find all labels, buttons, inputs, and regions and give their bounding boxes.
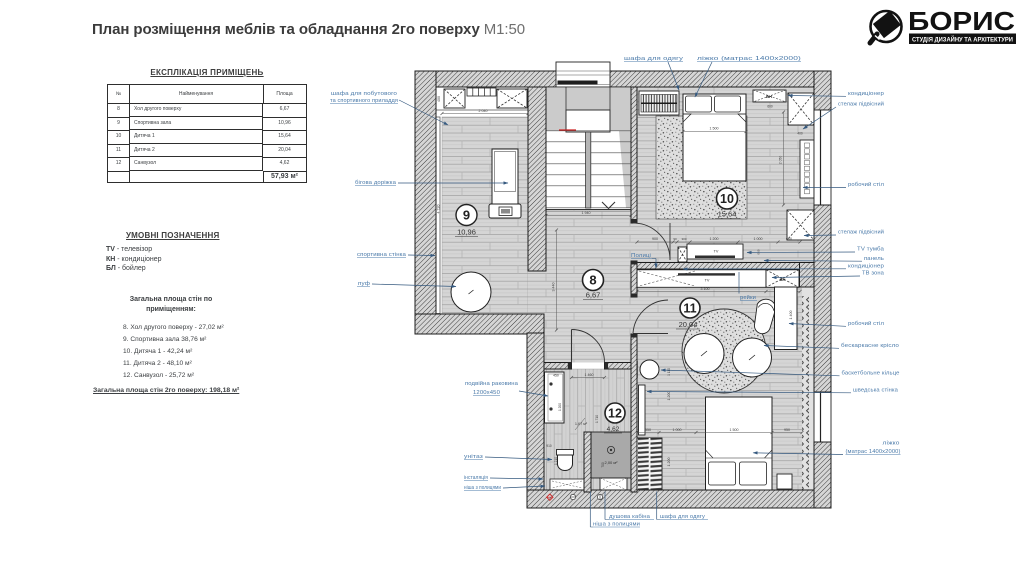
svg-text:баскетбольне кільце: баскетбольне кільце [842, 371, 900, 377]
svg-text:робочий стіл: робочий стіл [848, 320, 884, 327]
svg-text:700: 700 [601, 462, 605, 468]
svg-text:1 500: 1 500 [710, 127, 719, 131]
svg-text:20,04: 20,04 [679, 320, 698, 329]
svg-text:1 200: 1 200 [667, 392, 671, 401]
svg-text:90: 90 [673, 237, 677, 241]
svg-text:1 500: 1 500 [730, 428, 739, 432]
svg-text:400: 400 [437, 96, 441, 102]
svg-text:ВН: ВН [780, 277, 786, 282]
svg-text:1 000: 1 000 [673, 428, 682, 432]
svg-text:1 110: 1 110 [667, 368, 671, 376]
svg-text:12: 12 [608, 407, 622, 421]
svg-text:600: 600 [786, 237, 792, 241]
svg-text:(матрас 1400х2000): (матрас 1400х2000) [846, 449, 901, 455]
svg-text:ВН: ВН [766, 94, 772, 99]
svg-text:2 040: 2 040 [479, 109, 488, 113]
svg-text:1 710: 1 710 [595, 415, 599, 423]
svg-text:4 720: 4 720 [437, 205, 441, 214]
svg-text:TV: TV [714, 250, 719, 254]
svg-text:1 940: 1 940 [582, 211, 591, 215]
svg-text:3 440: 3 440 [552, 283, 556, 292]
svg-text:1200х450: 1200х450 [473, 390, 500, 396]
svg-text:панель: панель [864, 256, 884, 262]
svg-text:600: 600 [767, 105, 773, 109]
svg-text:6,67: 6,67 [586, 291, 601, 300]
svg-text:10,96: 10,96 [457, 228, 476, 237]
svg-text:300: 300 [681, 237, 686, 241]
svg-text:шафа для одягу: шафа для одягу [624, 56, 684, 62]
svg-text:рейки: рейки [740, 294, 756, 301]
svg-text:1 200: 1 200 [558, 403, 562, 411]
svg-text:1 210: 1 210 [554, 457, 558, 465]
svg-text:8: 8 [589, 273, 596, 288]
svg-text:ніша з полицями: ніша з полицями [464, 485, 501, 491]
svg-text:950: 950 [784, 428, 790, 432]
svg-text:шафа для одягу: шафа для одягу [660, 514, 705, 520]
svg-text:стелаж підвісний: стелаж підвісний [838, 101, 884, 108]
svg-text:спортивна стінка: спортивна стінка [357, 252, 406, 258]
svg-text:1 200: 1 200 [710, 237, 719, 241]
svg-text:1 000: 1 000 [754, 237, 763, 241]
svg-text:2,00 м²: 2,00 м² [605, 460, 619, 465]
svg-text:унітаз: унітаз [464, 454, 484, 460]
svg-text:TV: TV [705, 279, 710, 283]
svg-text:шафа для побутового: шафа для побутового [331, 91, 397, 97]
svg-text:2 050: 2 050 [779, 156, 783, 165]
svg-text:15,64: 15,64 [718, 210, 737, 219]
svg-text:бігова доріжка: бігова доріжка [355, 180, 396, 186]
svg-text:стелаж підвісний: стелаж підвісний [838, 229, 884, 236]
svg-text:ТВ зона: ТВ зона [862, 271, 884, 277]
svg-text:9: 9 [463, 208, 470, 223]
svg-text:кондиціонер: кондиціонер [848, 263, 884, 269]
svg-text:подвійна раковина: подвійна раковина [465, 380, 518, 387]
svg-text:ліжко: ліжко [883, 441, 900, 447]
svg-text:ніша з полицями: ніша з полицями [593, 522, 640, 528]
svg-text:400: 400 [797, 132, 803, 136]
svg-text:900: 900 [652, 237, 658, 241]
svg-text:10: 10 [720, 192, 734, 206]
svg-text:інсталяція: інсталяція [464, 475, 488, 481]
svg-text:душова кабіна: душова кабіна [609, 514, 650, 520]
svg-text:3 100: 3 100 [701, 287, 710, 291]
svg-text:4,62: 4,62 [607, 426, 620, 433]
svg-text:1 200: 1 200 [667, 458, 671, 467]
svg-text:ліжко (матрас 1400х2000): ліжко (матрас 1400х2000) [697, 56, 801, 62]
svg-text:шведська стінка: шведська стінка [853, 388, 898, 394]
svg-text:робочий стіл: робочий стіл [848, 181, 884, 188]
svg-text:1 460: 1 460 [585, 373, 594, 377]
svg-text:Полиці: Полиці [631, 253, 651, 259]
svg-text:910: 910 [546, 444, 552, 448]
svg-text:060: 060 [757, 249, 761, 254]
svg-text:TV тумба: TV тумба [857, 247, 884, 253]
svg-text:1 400: 1 400 [789, 311, 793, 320]
svg-text:та спортивного приладдя: та спортивного приладдя [330, 98, 398, 104]
svg-text:11: 11 [683, 302, 696, 316]
svg-text:450: 450 [553, 374, 559, 378]
svg-text:пуф: пуф [358, 281, 370, 287]
svg-text:бескаркасне крісло: бескаркасне крісло [841, 343, 899, 349]
svg-text:550: 550 [645, 428, 651, 432]
svg-text:кондиціонер: кондиціонер [848, 91, 884, 97]
